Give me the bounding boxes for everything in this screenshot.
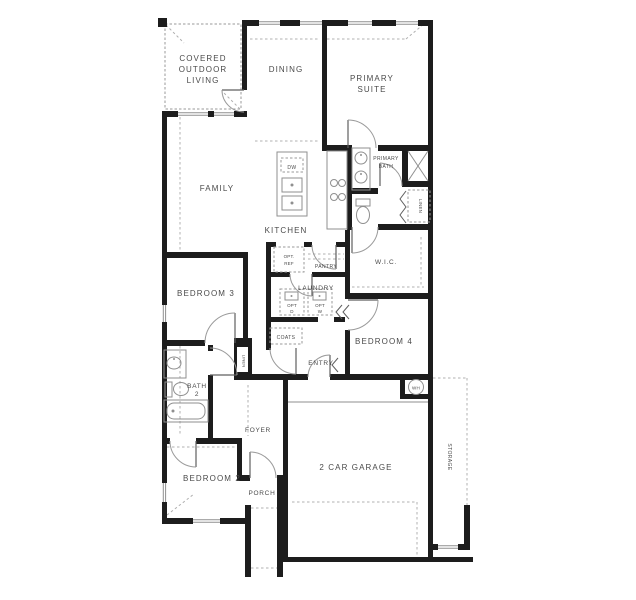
kitchen-counter bbox=[327, 151, 347, 229]
svg-text:D: D bbox=[290, 309, 294, 314]
bedroom3-door bbox=[205, 313, 235, 343]
window bbox=[396, 20, 418, 26]
room-label-garage: 2 CAR GARAGE bbox=[319, 463, 392, 472]
room-label-bedroom3: BEDROOM 3 bbox=[177, 289, 235, 298]
window bbox=[162, 305, 167, 322]
svg-text:REF: REF bbox=[284, 261, 294, 266]
label-dishwasher: DW bbox=[287, 165, 296, 171]
label-opt-washer: OPT bbox=[315, 303, 325, 308]
door-swing-chevrons bbox=[336, 305, 349, 319]
svg-text:W: W bbox=[318, 309, 323, 314]
laundry-appliances bbox=[280, 289, 332, 315]
window bbox=[162, 483, 167, 502]
toilet-bowl bbox=[357, 207, 370, 224]
room-label-porch: PORCH bbox=[249, 490, 276, 497]
room-label-bedroom4: BEDROOM 4 bbox=[355, 337, 413, 346]
room-label-bedroom2: BEDROOM 2 bbox=[183, 474, 241, 483]
window bbox=[348, 20, 372, 26]
room-label-wic: W.I.C. bbox=[375, 259, 397, 266]
window bbox=[438, 544, 458, 550]
svg-text:SUITE: SUITE bbox=[357, 85, 386, 94]
room-label-coats: COATS bbox=[277, 335, 296, 341]
window bbox=[214, 111, 234, 117]
linen-bifold-door bbox=[400, 191, 406, 223]
range-burner bbox=[331, 180, 338, 187]
range-burner bbox=[339, 180, 346, 187]
room-label-dining: DINING bbox=[269, 65, 304, 74]
svg-text:OUTDOOR: OUTDOOR bbox=[179, 65, 228, 74]
label-water-heater: WH bbox=[412, 386, 420, 391]
window bbox=[178, 111, 208, 117]
room-label-foyer: FOYER bbox=[245, 427, 271, 434]
front-door bbox=[250, 452, 276, 478]
range-burner bbox=[331, 194, 338, 201]
bedroom4-door bbox=[348, 300, 378, 330]
opt-refrigerator-box bbox=[274, 247, 304, 272]
window bbox=[193, 518, 220, 524]
window bbox=[259, 20, 280, 26]
bath2-door bbox=[210, 348, 237, 375]
floor-plan-page: COVERED OUTDOOR LIVING DINING PRIMARY SU… bbox=[0, 0, 636, 600]
room-label-pantry: PANTRY bbox=[315, 264, 337, 270]
wic-door bbox=[352, 227, 378, 253]
bedroom2-door bbox=[170, 441, 196, 467]
sink bbox=[355, 152, 367, 164]
svg-text:2: 2 bbox=[195, 391, 199, 398]
svg-text:LIVING: LIVING bbox=[187, 76, 220, 85]
room-label-bath2: BATH bbox=[187, 383, 207, 390]
room-label-primary-suite: PRIMARY bbox=[350, 74, 394, 83]
range-burner bbox=[339, 194, 346, 201]
label-opt-dryer: OPT bbox=[287, 303, 297, 308]
room-label-primary-bath: PRIMARY bbox=[373, 156, 399, 162]
label-storage: STORAGE bbox=[446, 443, 452, 470]
label-opt-ref: OPT. bbox=[284, 254, 295, 259]
room-label-covered-outdoor-living: COVERED bbox=[179, 54, 226, 63]
kitchen-island bbox=[277, 152, 307, 216]
room-label-entry: ENTRY bbox=[308, 360, 333, 367]
room-label-kitchen: KITCHEN bbox=[265, 226, 308, 235]
room-label-family: FAMILY bbox=[200, 184, 234, 193]
primary-suite-door bbox=[348, 120, 376, 148]
label-linen-hall: LINEN bbox=[242, 355, 247, 368]
sink bbox=[355, 171, 367, 183]
window bbox=[300, 20, 322, 26]
svg-text:BATH: BATH bbox=[379, 164, 394, 170]
coats-door bbox=[270, 348, 296, 374]
room-label-laundry: LAUNDRY bbox=[298, 285, 334, 292]
floor-plan-drawing: COVERED OUTDOOR LIVING DINING PRIMARY SU… bbox=[0, 0, 636, 600]
label-linen-primary: LINEN bbox=[418, 199, 423, 213]
toilet-tank bbox=[356, 199, 370, 206]
patio-corner-post bbox=[158, 18, 167, 27]
